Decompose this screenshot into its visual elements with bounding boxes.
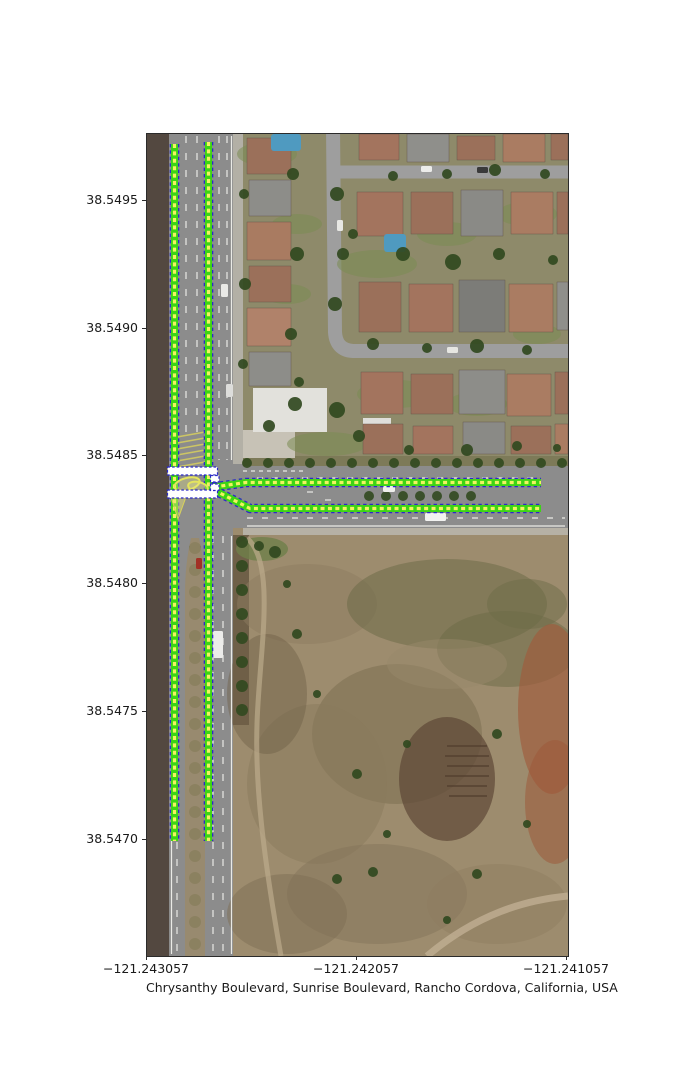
tree xyxy=(515,458,525,468)
field-patch xyxy=(227,634,307,754)
tree xyxy=(287,168,299,180)
x-tick-label: −121.242057 xyxy=(301,962,411,976)
house-roof xyxy=(557,282,568,330)
house-roof xyxy=(411,192,453,234)
house-roof xyxy=(247,222,291,260)
tree xyxy=(263,420,275,432)
tree xyxy=(283,580,291,588)
tree xyxy=(422,343,432,353)
house-roof xyxy=(359,282,401,332)
field-patch xyxy=(227,874,347,954)
tree xyxy=(254,541,264,551)
house-roof xyxy=(457,136,495,160)
field-patch xyxy=(399,717,495,841)
tree xyxy=(348,229,358,239)
swimming-pool xyxy=(271,134,301,151)
tree xyxy=(236,560,248,572)
tree xyxy=(445,254,461,270)
house-roof xyxy=(503,134,545,162)
tree xyxy=(557,458,567,468)
vehicle xyxy=(226,384,233,397)
y-tick-label: 38.5470 xyxy=(70,832,138,846)
house-roof xyxy=(249,352,291,386)
tree xyxy=(396,247,410,261)
tree xyxy=(452,458,462,468)
tree xyxy=(269,546,281,558)
tree xyxy=(443,916,451,924)
tree xyxy=(489,164,501,176)
house-roof xyxy=(247,308,291,346)
crosswalk-bar xyxy=(211,476,220,483)
y-tick-mark xyxy=(142,583,146,584)
y-tick-mark xyxy=(142,328,146,329)
crosswalk-bar xyxy=(168,467,218,475)
vehicle xyxy=(221,284,228,297)
tree xyxy=(236,536,248,548)
tree xyxy=(368,458,378,468)
median-island xyxy=(185,538,205,956)
house-roof xyxy=(461,190,503,236)
tree xyxy=(239,278,251,290)
house-roof xyxy=(363,424,403,454)
house-roof xyxy=(409,284,453,332)
tree xyxy=(522,345,532,355)
tree xyxy=(494,458,504,468)
tree xyxy=(290,247,304,261)
tree xyxy=(381,491,391,501)
house-roof xyxy=(555,372,568,414)
tree xyxy=(368,867,378,877)
tree xyxy=(388,171,398,181)
crosswalk-bar xyxy=(168,490,218,498)
vehicle xyxy=(447,347,458,353)
tree xyxy=(326,458,336,468)
tree xyxy=(236,656,248,668)
tree xyxy=(404,445,414,455)
tree xyxy=(329,402,345,418)
south-sidewalk xyxy=(243,528,568,535)
x-axis-label: Chrysanthy Boulevard, Sunrise Boulevard,… xyxy=(146,980,567,995)
field-patch xyxy=(487,579,567,629)
tree xyxy=(512,441,522,451)
tree xyxy=(449,491,459,501)
tree xyxy=(236,608,248,620)
y-tick-mark xyxy=(142,455,146,456)
x-tick-mark xyxy=(356,956,357,960)
y-tick-mark xyxy=(142,200,146,201)
vehicle xyxy=(213,631,223,658)
tree xyxy=(238,359,248,369)
house-roof xyxy=(411,374,453,414)
tree xyxy=(236,680,248,692)
vehicle xyxy=(337,220,343,231)
tree xyxy=(536,458,546,468)
house-roof xyxy=(459,280,505,332)
tree xyxy=(473,458,483,468)
tree xyxy=(305,458,315,468)
tree xyxy=(292,629,302,639)
vehicle xyxy=(196,558,202,569)
vehicle xyxy=(425,513,446,521)
tree xyxy=(239,189,249,199)
tree xyxy=(432,491,442,501)
tree xyxy=(461,444,473,456)
house-roof xyxy=(557,192,568,234)
tree xyxy=(263,458,273,468)
tree xyxy=(540,169,550,179)
field-patch xyxy=(427,864,567,944)
house-roof xyxy=(413,426,453,454)
tree xyxy=(367,338,379,350)
tree xyxy=(328,297,342,311)
tree xyxy=(470,339,484,353)
tree xyxy=(403,740,411,748)
tree xyxy=(523,820,531,828)
tree xyxy=(352,769,362,779)
tree xyxy=(364,491,374,501)
tree xyxy=(285,328,297,340)
x-tick-label: −121.243057 xyxy=(91,962,201,976)
east-sidewalk xyxy=(233,134,243,464)
y-tick-mark xyxy=(142,839,146,840)
tree xyxy=(332,874,342,884)
tree xyxy=(330,187,344,201)
vehicle xyxy=(421,166,432,172)
house-roof xyxy=(249,266,291,302)
x-tick-label: −121.241057 xyxy=(511,962,621,976)
crosswalk-bar xyxy=(211,484,220,491)
house-roof xyxy=(507,374,551,416)
tree xyxy=(492,729,502,739)
y-tick-label: 38.5495 xyxy=(70,193,138,207)
house-roof xyxy=(249,180,291,216)
y-tick-label: 38.5490 xyxy=(70,321,138,335)
house-roof xyxy=(359,134,399,160)
tree xyxy=(472,869,482,879)
x-tick-mark xyxy=(566,956,567,960)
tree xyxy=(442,169,452,179)
tree xyxy=(493,248,505,260)
tree xyxy=(236,632,248,644)
tree xyxy=(347,458,357,468)
tree xyxy=(410,458,420,468)
house-roof xyxy=(361,372,403,414)
tree xyxy=(431,458,441,468)
figure-canvas: 38.549538.549038.548538.548038.547538.54… xyxy=(0,0,690,1080)
tree xyxy=(398,491,408,501)
tree xyxy=(415,491,425,501)
tree xyxy=(313,690,321,698)
map-plot xyxy=(146,133,569,957)
x-tick-mark xyxy=(146,956,147,960)
dirt-strip-west xyxy=(147,134,169,956)
tree xyxy=(242,458,252,468)
house-roof xyxy=(459,370,505,414)
y-tick-label: 38.5480 xyxy=(70,576,138,590)
vehicle xyxy=(477,167,488,173)
tree xyxy=(466,491,476,501)
tree xyxy=(236,704,248,716)
tree xyxy=(236,584,248,596)
tree xyxy=(284,458,294,468)
tree xyxy=(548,255,558,265)
field-patch xyxy=(387,639,507,689)
house-roof xyxy=(509,284,553,332)
house-roof xyxy=(357,192,403,236)
y-tick-mark xyxy=(142,711,146,712)
satellite-map-image xyxy=(147,134,568,956)
house-roof xyxy=(551,134,568,160)
tree xyxy=(553,444,561,452)
tree xyxy=(389,458,399,468)
house-roof xyxy=(511,192,553,234)
tree xyxy=(294,377,304,387)
tree xyxy=(353,430,365,442)
tree xyxy=(383,830,391,838)
y-tick-label: 38.5475 xyxy=(70,704,138,718)
house-roof xyxy=(407,134,449,162)
y-tick-label: 38.5485 xyxy=(70,448,138,462)
tree xyxy=(288,397,302,411)
tree xyxy=(337,248,349,260)
